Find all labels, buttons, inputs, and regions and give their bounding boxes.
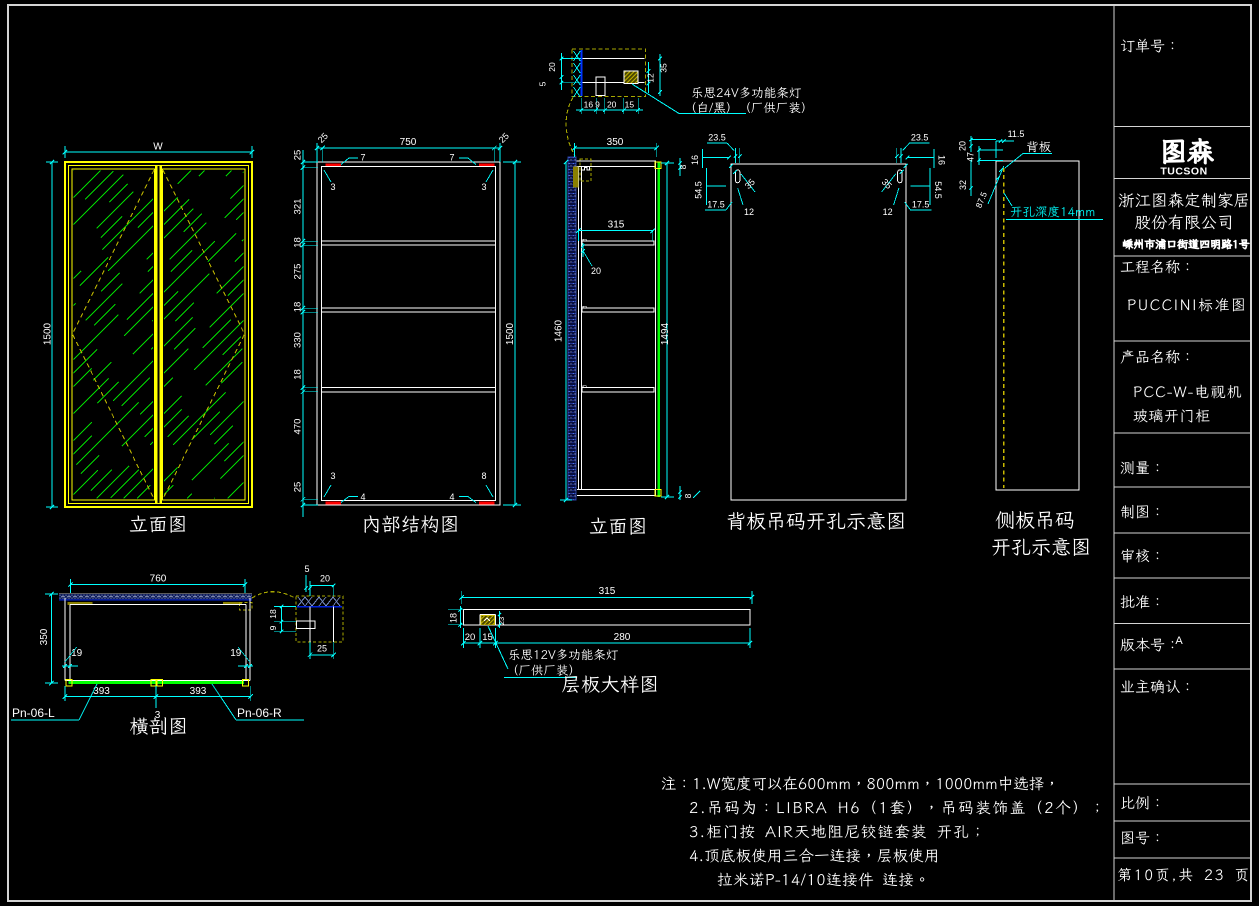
svg-text:54.5: 54.5	[694, 181, 704, 199]
svg-text:18: 18	[293, 302, 304, 313]
svg-text:17.5: 17.5	[707, 200, 725, 210]
svg-text:16: 16	[937, 155, 947, 165]
svg-text:20: 20	[591, 266, 601, 276]
svg-text:20: 20	[465, 632, 476, 643]
svg-text:760: 760	[150, 574, 167, 585]
svg-text:16: 16	[584, 100, 594, 110]
svg-text:W: W	[153, 142, 163, 153]
svg-text:3: 3	[330, 471, 335, 481]
svg-text:321: 321	[293, 199, 304, 215]
svg-text:315: 315	[599, 586, 616, 597]
svg-text:350: 350	[39, 628, 50, 645]
svg-text:9: 9	[268, 625, 278, 630]
svg-text:54.5: 54.5	[933, 181, 943, 199]
svg-text:350: 350	[607, 137, 624, 148]
svg-text:20: 20	[547, 62, 557, 72]
svg-text:3: 3	[330, 182, 335, 192]
svg-text:7: 7	[449, 153, 454, 163]
svg-text:18: 18	[293, 369, 304, 380]
svg-text:1500: 1500	[505, 322, 516, 345]
svg-text:16: 16	[690, 155, 700, 165]
svg-text:1500: 1500	[43, 322, 54, 345]
svg-text:8: 8	[678, 164, 688, 169]
svg-text:20: 20	[958, 141, 968, 151]
svg-text:32: 32	[958, 180, 968, 190]
svg-text:315: 315	[608, 220, 625, 231]
svg-text:23: 23	[497, 617, 506, 625]
svg-text:275: 275	[293, 264, 304, 280]
svg-text:5: 5	[538, 81, 548, 86]
svg-text:7: 7	[360, 153, 365, 163]
svg-text:393: 393	[93, 686, 110, 697]
svg-text:Pn-06-R: Pn-06-R	[237, 706, 282, 720]
svg-text:393: 393	[190, 686, 207, 697]
svg-text:Pn-06-L: Pn-06-L	[12, 706, 55, 720]
svg-text:17.5: 17.5	[912, 200, 930, 210]
svg-text:11.5: 11.5	[1008, 129, 1025, 139]
svg-text:18: 18	[293, 237, 304, 248]
svg-text:25: 25	[317, 644, 327, 654]
svg-text:330: 330	[293, 332, 304, 348]
svg-text:23.5: 23.5	[708, 133, 726, 143]
svg-text:15: 15	[625, 100, 635, 110]
svg-text:20: 20	[320, 574, 330, 584]
svg-text:TUCSON: TUCSON	[1160, 166, 1207, 178]
svg-text:5: 5	[304, 564, 309, 574]
svg-text:4: 4	[360, 492, 365, 502]
svg-text:18: 18	[449, 613, 459, 623]
svg-text:9: 9	[595, 100, 600, 110]
svg-text:18: 18	[268, 609, 278, 619]
svg-text:1460: 1460	[554, 319, 565, 342]
svg-text:20: 20	[607, 100, 617, 110]
svg-text:470: 470	[293, 419, 304, 435]
svg-text:25: 25	[293, 150, 304, 161]
svg-text:12: 12	[744, 207, 754, 217]
svg-text:12: 12	[646, 73, 656, 83]
svg-text:35: 35	[659, 63, 669, 73]
svg-text:8: 8	[683, 493, 693, 498]
svg-text:4: 4	[449, 492, 454, 502]
svg-text:280: 280	[614, 632, 631, 643]
svg-text:23.5: 23.5	[911, 133, 929, 143]
svg-text:47: 47	[966, 152, 976, 162]
svg-text:750: 750	[400, 137, 417, 148]
svg-text:1494: 1494	[660, 322, 671, 345]
svg-text:A: A	[1175, 635, 1183, 647]
svg-text:19: 19	[71, 648, 83, 659]
svg-text:3: 3	[481, 182, 486, 192]
svg-text:12: 12	[883, 207, 893, 217]
svg-text:25: 25	[293, 482, 304, 493]
svg-text:8: 8	[481, 471, 486, 481]
